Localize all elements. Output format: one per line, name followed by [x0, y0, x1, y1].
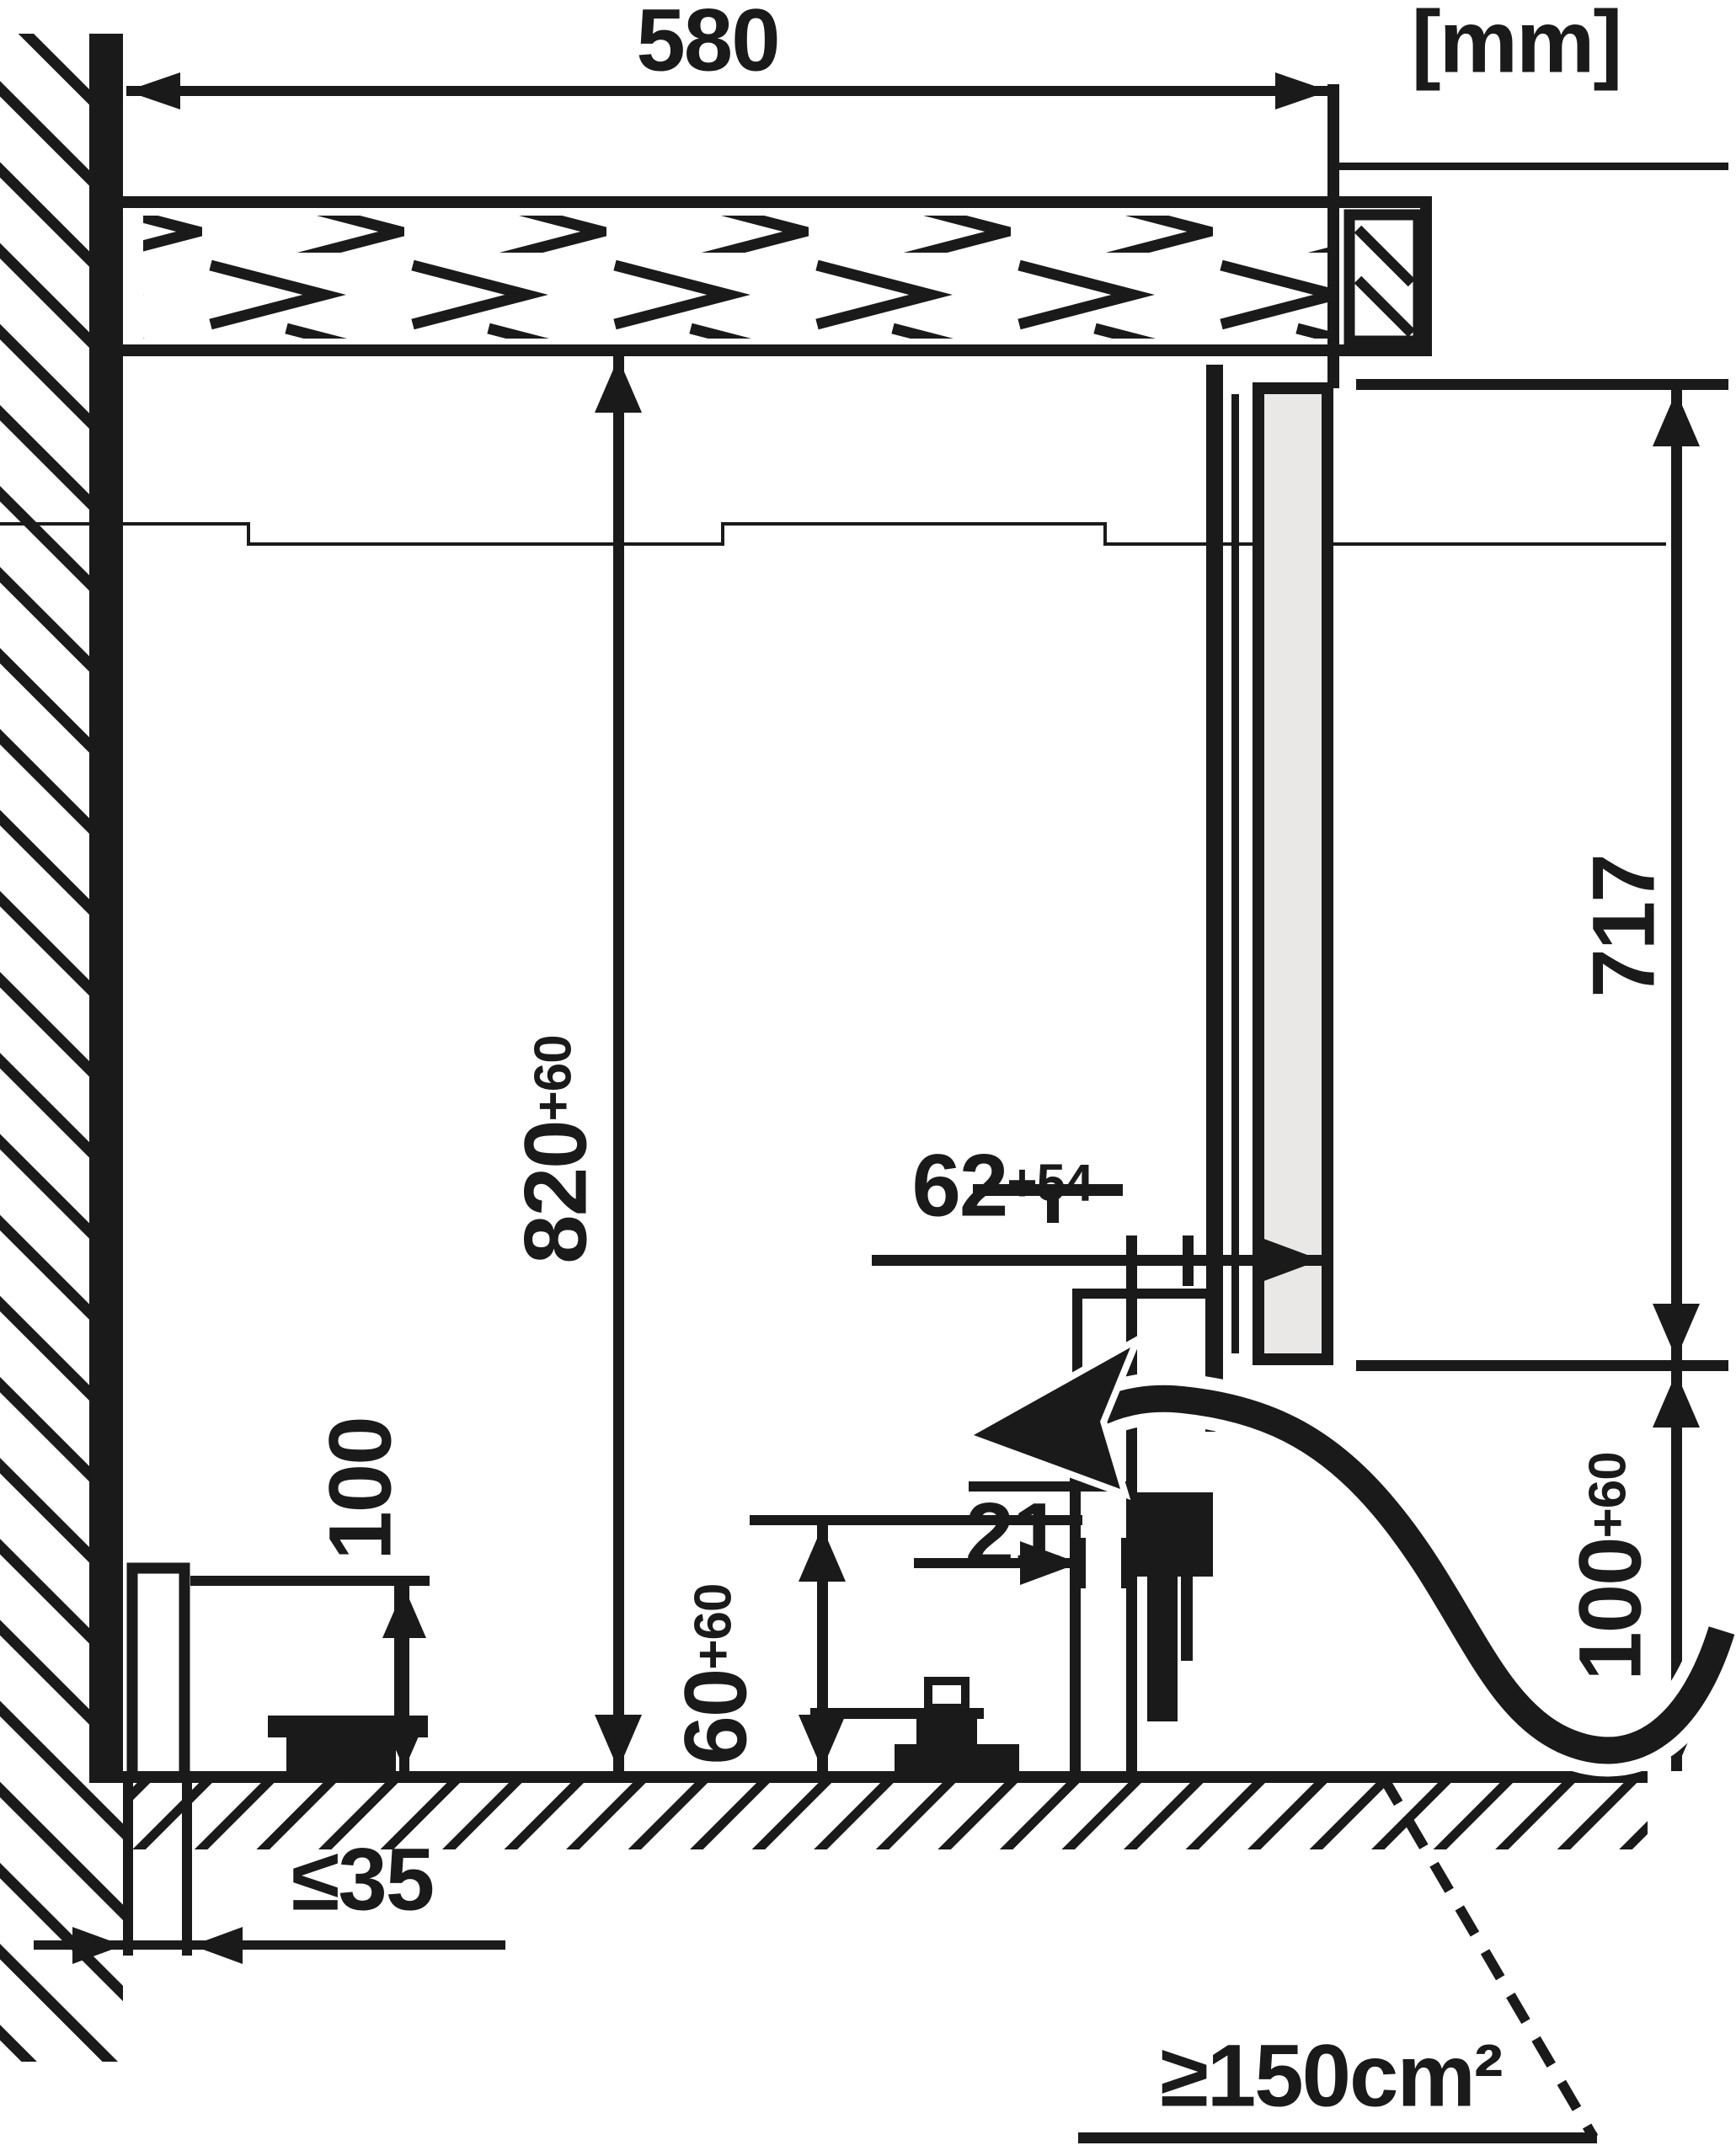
break-line [0, 524, 1666, 544]
mains-connection [132, 1568, 428, 1777]
extension-line [1327, 84, 1339, 388]
rear-recess [132, 1568, 184, 1777]
dim-label-socket-height: 100 [317, 1417, 405, 1560]
top-extension-line [1339, 163, 1728, 170]
dim-label-wall-clearance: ≤35 [291, 1836, 433, 1924]
arrow-down-icon [595, 1715, 642, 1769]
foot-mount [928, 1681, 965, 1708]
foot-stem [916, 1719, 977, 1744]
hinge-bracket [1133, 1492, 1213, 1577]
dim-label-plinth-height: 100+60 [1567, 1452, 1655, 1680]
foot-base [895, 1744, 1019, 1771]
leader-underline [1078, 2132, 1597, 2143]
arrow-down-icon [1653, 1304, 1700, 1358]
installation-diagram: 580 [mm] 717 820+60 62+54 21 60+60 100 1… [0, 0, 1736, 2156]
dim-label-niche-height: 820+60 [512, 1035, 601, 1263]
dim-label-door-offset: 62+54 [912, 1142, 1093, 1230]
arrow-right-icon [1275, 72, 1329, 109]
dim-label-front-gap: 21 [965, 1491, 1060, 1579]
diagram-linework [0, 0, 1736, 2156]
tick [1183, 1235, 1194, 1286]
arrow-left-icon [126, 72, 180, 109]
arrow-up-icon [799, 1527, 846, 1582]
floor-line [123, 1771, 1648, 1783]
plug-body [286, 1737, 396, 1771]
arrow-up-icon [595, 358, 642, 413]
door-bottom-extension-line [1356, 1360, 1728, 1371]
door-top-extension-line [1356, 379, 1728, 390]
dim-label-vent-area: ≥150cm² [1160, 2032, 1502, 2121]
arrow-down-icon [799, 1715, 846, 1769]
wall-hatch-below-floor [0, 1783, 123, 2062]
unit-label: [mm] [1412, 0, 1621, 87]
countertop [123, 196, 1432, 356]
dim-820-60 [595, 356, 642, 1771]
arrow-up-icon [1653, 1373, 1700, 1428]
extension-line [278, 1576, 430, 1586]
appliance-door-face [1231, 394, 1239, 1353]
wall-face [89, 34, 123, 1783]
worktop-grain [143, 216, 1331, 339]
wall-section [0, 34, 123, 2062]
arrow-up-icon [1653, 392, 1700, 446]
appliance-base [810, 1681, 1019, 1771]
extension-line [123, 1783, 133, 1956]
appliance-front-frame [1206, 365, 1223, 1401]
furniture-door-panel [1258, 388, 1327, 1359]
arrow-up-icon [382, 1588, 426, 1638]
arrow-left-icon [192, 1927, 243, 1964]
extension-line [182, 1783, 192, 1956]
dim-label-niche-depth: 580 [636, 0, 778, 85]
dim-label-door-height: 717 [1580, 855, 1669, 997]
dim-label-vent-height: 60+60 [672, 1584, 761, 1765]
